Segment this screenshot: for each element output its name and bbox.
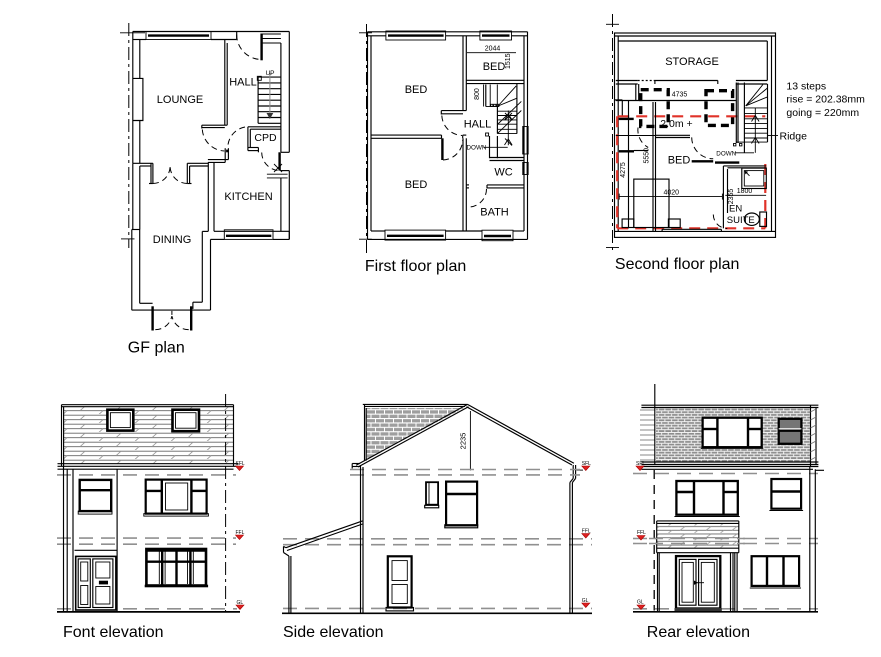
svg-text:GL: GL — [637, 600, 644, 606]
svg-text:DINING: DINING — [153, 234, 192, 246]
svg-text:STORAGE: STORAGE — [665, 56, 719, 68]
svg-text:2044: 2044 — [485, 46, 501, 53]
svg-text:GF plan: GF plan — [128, 340, 185, 357]
svg-text:13 steps: 13 steps — [786, 81, 826, 93]
svg-text:Second floor plan: Second floor plan — [615, 256, 740, 273]
svg-text:BATH: BATH — [480, 207, 509, 219]
svg-text:BED: BED — [483, 61, 506, 73]
svg-text:800: 800 — [474, 88, 481, 100]
svg-text:Font elevation: Font elevation — [63, 624, 164, 641]
svg-text:Side elevation: Side elevation — [283, 624, 384, 641]
svg-text:DOWN: DOWN — [467, 145, 487, 152]
svg-text:FFL: FFL — [637, 530, 646, 536]
svg-text:KITCHEN: KITCHEN — [224, 191, 272, 203]
svg-text:LOUNGE: LOUNGE — [157, 94, 203, 106]
svg-text:BED: BED — [405, 84, 428, 96]
svg-text:4275: 4275 — [620, 162, 627, 178]
svg-text:CPD: CPD — [254, 132, 277, 144]
svg-text:HALL: HALL — [229, 77, 257, 89]
svg-text:2355: 2355 — [728, 189, 735, 205]
svg-text:BED: BED — [405, 179, 428, 191]
svg-text:4020: 4020 — [664, 190, 680, 197]
svg-text:4735: 4735 — [672, 92, 688, 99]
svg-text:First floor plan: First floor plan — [365, 258, 466, 275]
svg-text:HALL: HALL — [464, 119, 492, 131]
svg-text:2.0m +: 2.0m + — [660, 118, 692, 130]
svg-text:WC: WC — [494, 167, 512, 179]
svg-text:Ridge: Ridge — [780, 131, 808, 143]
svg-text:UP: UP — [265, 70, 274, 77]
svg-text:SUITE: SUITE — [727, 215, 755, 226]
svg-text:DOWN: DOWN — [716, 150, 736, 157]
svg-text:5550: 5550 — [643, 148, 650, 164]
svg-text:going = 220mm: going = 220mm — [786, 107, 859, 119]
svg-text:1515: 1515 — [505, 53, 512, 69]
svg-text:BED: BED — [668, 155, 691, 167]
svg-text:Rear elevation: Rear elevation — [647, 624, 750, 641]
svg-text:2235: 2235 — [459, 433, 468, 450]
svg-text:1800: 1800 — [737, 188, 753, 195]
svg-text:rise = 202.38mm: rise = 202.38mm — [786, 94, 865, 106]
